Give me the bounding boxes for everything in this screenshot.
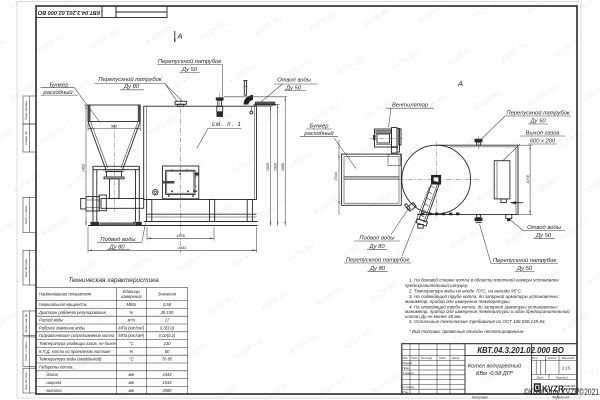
svg-text:Лист: Лист: [536, 375, 545, 379]
svg-text:Ду 50: Ду 50: [516, 266, 533, 272]
svg-text:Подп. и дата: Подп. и дата: [24, 205, 28, 224]
svg-text:Подп. и дата: Подп. и дата: [24, 342, 28, 361]
svg-text:Ду 80: Ду 80: [368, 244, 385, 250]
svg-text:А: А: [457, 79, 463, 88]
svg-text:* Вид топлива: древесные отх: * Вид топлива: древесные отходы пеллетир…: [409, 329, 525, 334]
svg-text:Расход воды: Расход воды: [39, 318, 63, 323]
svg-text:Масса: Масса: [548, 356, 556, 360]
svg-text:1544: 1544: [334, 172, 338, 180]
svg-text:Значения: Значения: [158, 292, 177, 297]
svg-text:Температура воды (вход/выход): Температура воды (вход/выход): [39, 357, 102, 362]
svg-text:Подвод воды: Подвод воды: [359, 236, 395, 242]
svg-text:Подп.: Подп.: [439, 356, 446, 360]
svg-text:1678: 1678: [176, 234, 185, 238]
svg-text:КВм -0,58 ДП*: КВм -0,58 ДП*: [476, 371, 514, 377]
svg-text:Перепускной патрубок: Перепускной патрубок: [158, 58, 222, 65]
svg-text:1078: 1078: [526, 174, 530, 183]
svg-text:70-95: 70-95: [162, 357, 173, 362]
svg-text:Масштаб: Масштаб: [562, 356, 575, 360]
svg-text:°С: °С: [129, 341, 134, 346]
svg-text:30-100: 30-100: [161, 310, 174, 315]
svg-text:Перепускной патрубок: Перепускной патрубок: [506, 110, 570, 117]
svg-text:Листов 1: Листов 1: [555, 375, 569, 379]
svg-text:80: 80: [165, 349, 170, 354]
svg-text:МПа (кгс/см²): МПа (кгс/см²): [118, 325, 144, 330]
svg-text:Изм: Изм: [403, 356, 408, 360]
svg-text:Отвод воды: Отвод воды: [527, 225, 562, 231]
svg-text:Номинальная мощность: Номинальная мощность: [39, 302, 87, 307]
svg-text:Перв. примен.: Перв. примен.: [24, 100, 28, 120]
svg-text:измерения: измерения: [121, 294, 142, 299]
svg-text:Инв. № дубл.: Инв. № дубл.: [24, 258, 28, 277]
svg-text:Перепускной патрубок: Перепускной патрубок: [346, 257, 410, 264]
svg-text:Техническая характеристика: Техническая характеристика: [68, 277, 159, 284]
svg-text:Лит.: Лит.: [531, 356, 539, 360]
svg-text:м³/ч: м³/ч: [128, 318, 136, 323]
svg-text:2443: 2443: [177, 246, 187, 250]
svg-text:манометр, прибор для измерения: манометр, прибор для измерения температу…: [405, 299, 511, 304]
svg-text:902: 902: [111, 124, 118, 128]
svg-text:КВТ.04.3.201.02.000 ВО: КВТ.04.3.201.02.000 ВО: [477, 346, 564, 355]
svg-text:мм: мм: [128, 372, 134, 377]
svg-text:Инв. № подл.: Инв. № подл.: [24, 371, 28, 390]
svg-text:Пров.: Пров.: [403, 366, 410, 370]
svg-text:5. Остальные технические треб: 5. Остальные технические требования по О…: [409, 319, 546, 324]
svg-text:1:15: 1:15: [562, 365, 571, 370]
svg-text:Ду 80: Ду 80: [123, 84, 140, 90]
svg-text:- высота: - высота: [44, 388, 62, 393]
svg-text:Дата: Дата: [451, 356, 460, 360]
svg-text:0,02(0,2): 0,02(0,2): [159, 333, 176, 338]
svg-text:А: А: [177, 32, 183, 41]
svg-text:Бункер: Бункер: [310, 124, 330, 130]
svg-text:Вентилятор: Вентилятор: [392, 103, 429, 109]
svg-text:0,58: 0,58: [163, 302, 172, 307]
svg-text:предохранительный штуцер.: предохранительный штуцер.: [405, 282, 469, 288]
svg-text:2080: 2080: [161, 388, 172, 393]
svg-text:2443: 2443: [161, 372, 172, 377]
svg-text:17: 17: [165, 318, 170, 323]
svg-text:КВТ.04.3.201.02.000 ВО: КВТ.04.3.201.02.000 ВО: [37, 9, 100, 15]
svg-text:см. п. 1: см. п. 1: [212, 122, 242, 128]
svg-text:2080: 2080: [281, 162, 285, 172]
svg-text:%: %: [129, 310, 133, 315]
svg-text:1829: 1829: [266, 162, 270, 171]
svg-text:Ду 50: Ду 50: [181, 67, 198, 73]
svg-text:Наименование показателя: Наименование показателя: [39, 292, 92, 297]
svg-text:Разраб.: Разраб.: [403, 361, 413, 365]
svg-text:мм: мм: [128, 388, 134, 393]
svg-text:- длина: - длина: [44, 372, 59, 377]
svg-text:№ докум.: № докум.: [421, 356, 433, 360]
svg-text:Рабочее давление воды: Рабочее давление воды: [39, 325, 85, 330]
svg-text:1962: 1962: [82, 163, 86, 172]
svg-text:расходный: расходный: [42, 89, 73, 96]
svg-text:Перепускной патрубок: Перепускной патрубок: [98, 76, 162, 83]
svg-text:1. На боковой стенке котла в: 1. На боковой стенке котла в области топ…: [409, 277, 559, 283]
svg-text:МПа (кгс/см²): МПа (кгс/см²): [118, 333, 144, 338]
svg-text:Выход газов: Выход газов: [526, 131, 560, 137]
svg-text:Т. контр.: Т. контр.: [403, 371, 415, 375]
svg-text:Отвод воды: Отвод воды: [277, 78, 312, 84]
svg-text:мм: мм: [128, 380, 134, 385]
svg-text:К.П.Д. котла на проектном топл: К.П.Д. котла на проектном топливе: [39, 349, 111, 354]
svg-text:Лист: Лист: [410, 356, 419, 360]
svg-text:МВт: МВт: [127, 302, 137, 307]
svg-text:230: 230: [163, 341, 172, 346]
svg-text:Справ. №: Справ. №: [24, 130, 28, 144]
svg-text:Габариты котла:: Габариты котла:: [39, 364, 73, 369]
svg-text:Копировал: Копировал: [472, 396, 488, 400]
svg-text:расходный: расходный: [303, 130, 334, 137]
svg-text:2. Температура воды на входе: 2. Температура воды на входе 70°С, на вы…: [408, 289, 522, 294]
svg-text:Температура уходящих газов, не: Температура уходящих газов, не более: [39, 341, 117, 346]
svg-text:Гидравлическое сопротивление к: Гидравлическое сопротивление котла: [39, 333, 115, 338]
svg-text:1920: 1920: [273, 162, 277, 171]
svg-text:Ду 80: Ду 80: [369, 266, 386, 272]
svg-text:- ширина: - ширина: [44, 380, 62, 385]
svg-text:©KotelStroy.KVZR©2021: ©KotelStroy.KVZR©2021: [524, 387, 599, 397]
svg-text:Взам. инв. №: Взам. инв. №: [24, 313, 28, 332]
svg-text:Утв.: Утв.: [403, 390, 409, 394]
svg-text:Перепускной патрубок: Перепускной патрубок: [493, 257, 557, 264]
svg-text:0,3(3,0): 0,3(3,0): [160, 325, 175, 330]
svg-text:%: %: [129, 349, 133, 354]
svg-text:Ду 50: Ду 50: [529, 119, 546, 125]
svg-text:°С: °С: [129, 357, 134, 362]
svg-text:1544: 1544: [162, 380, 172, 385]
svg-text:Ду 50: Ду 50: [535, 233, 552, 239]
svg-text:Диапазон рабочего регулировани: Диапазон рабочего регулирования: [38, 310, 107, 315]
svg-text:Н. контр.: Н. контр.: [403, 385, 415, 389]
svg-text:Котел водогрейный: Котел водогрейный: [468, 362, 521, 369]
svg-text:600 х 200: 600 х 200: [530, 139, 556, 145]
